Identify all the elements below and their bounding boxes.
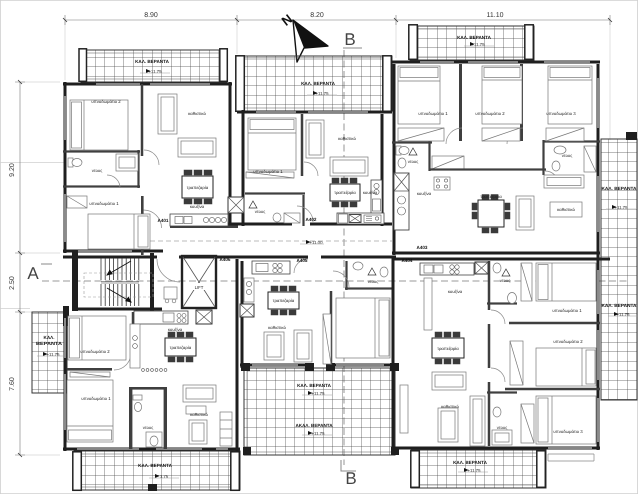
svg-text:υπνοδωμάτιο 2: υπνοδωμάτιο 2 <box>553 339 583 344</box>
svg-text:B: B <box>344 30 355 49</box>
svg-text:καθιστικό: καθιστικό <box>190 412 208 417</box>
svg-text:κουζίνα: κουζίνα <box>448 289 463 294</box>
svg-text:καθιστικό: καθιστικό <box>338 136 356 141</box>
svg-text:ΑΚΑΛ. ΒΕΡΑΝΤΑ: ΑΚΑΛ. ΒΕΡΑΝΤΑ <box>295 423 333 428</box>
svg-text:κουζίνα: κουζίνα <box>417 191 432 196</box>
svg-text:υπνοδωμάτιο 3: υπνοδωμάτιο 3 <box>553 429 583 434</box>
svg-text:ΚΑΛ. ΒΕΡΑΝΤΑ: ΚΑΛ. ΒΕΡΑΝΤΑ <box>135 59 169 64</box>
svg-text:υπνοδωμάτιο 1: υπνοδωμάτιο 1 <box>418 111 448 116</box>
svg-text:τραπεζαρία: τραπεζαρία <box>480 194 502 199</box>
svg-text:ΚΑΛ. ΒΕΡΑΝΤΑ: ΚΑΛ. ΒΕΡΑΝΤΑ <box>138 463 172 468</box>
svg-text:υπνοδωμάτιο 1: υπνοδωμάτιο 1 <box>552 308 582 313</box>
svg-text:ΚΑΛ. ΒΕΡΑΝΤΑ: ΚΑΛ. ΒΕΡΑΝΤΑ <box>453 460 487 465</box>
svg-text:ντους: ντους <box>255 209 266 214</box>
svg-text:9.20: 9.20 <box>9 163 16 177</box>
svg-text:ντους: ντους <box>143 425 154 430</box>
svg-text:καθιστικό: καθιστικό <box>441 404 459 409</box>
svg-text:A404: A404 <box>402 258 413 263</box>
svg-text:τραπεζαρία: τραπεζαρία <box>437 346 459 351</box>
svg-text:υπνοδωμάτιο 3: υπνοδωμάτιο 3 <box>546 111 576 116</box>
svg-text:ΒΕΡΑΝΤΑ: ΒΕΡΑΝΤΑ <box>36 341 63 346</box>
svg-text:τραπεζαρία: τραπεζαρία <box>187 185 209 190</box>
svg-text:LIFT: LIFT <box>195 285 204 290</box>
svg-text:ντους: ντους <box>92 168 103 173</box>
svg-text:B: B <box>345 469 356 488</box>
svg-text:τραπεζαρία: τραπεζαρία <box>170 345 192 350</box>
svg-text:A402: A402 <box>306 217 317 222</box>
svg-text:2.50: 2.50 <box>9 276 16 290</box>
svg-text:υπνοδωμάτιο 1: υπνοδωμάτιο 1 <box>89 201 119 206</box>
svg-text:υπνοδωμάτιο 2: υπνοδωμάτιο 2 <box>91 99 121 104</box>
svg-text:A405: A405 <box>297 258 308 263</box>
svg-text:υπνοδωμάτιο 1: υπνοδωμάτιο 1 <box>253 169 283 174</box>
svg-text:τραπεζαρία: τραπεζαρία <box>273 298 295 303</box>
svg-text:8.20: 8.20 <box>310 12 324 19</box>
svg-text:11.10: 11.10 <box>487 12 504 19</box>
svg-text:A: A <box>27 264 39 283</box>
svg-text:A406: A406 <box>220 257 231 262</box>
svg-text:καθιστικό: καθιστικό <box>268 325 286 330</box>
svg-text:ντους: ντους <box>497 425 508 430</box>
svg-text:κουζίνα: κουζίνα <box>190 204 205 209</box>
svg-text:τραπεζαρία: τραπεζαρία <box>334 190 356 195</box>
svg-text:7.60: 7.60 <box>9 377 16 391</box>
svg-text:ΚΑΛ. ΒΕΡΑΝΤΑ: ΚΑΛ. ΒΕΡΑΝΤΑ <box>301 81 335 86</box>
svg-text:8.90: 8.90 <box>144 12 158 19</box>
svg-text:καθιστικό: καθιστικό <box>188 111 206 116</box>
svg-text:υπνοδωμάτιο 2: υπνοδωμάτιο 2 <box>475 111 505 116</box>
svg-text:ΚΑΛ. ΒΕΡΑΝΤΑ: ΚΑΛ. ΒΕΡΑΝΤΑ <box>602 303 638 308</box>
svg-text:A401: A401 <box>158 218 169 223</box>
svg-text:ΚΑΛ. ΒΕΡΑΝΤΑ: ΚΑΛ. ΒΕΡΑΝΤΑ <box>297 383 331 388</box>
svg-text:ΚΑΛ.: ΚΑΛ. <box>44 335 55 340</box>
svg-text:ντους: ντους <box>368 279 379 284</box>
svg-text:ντους: ντους <box>408 159 419 164</box>
svg-text:ντους: ντους <box>500 278 511 283</box>
svg-text:καθιστικό: καθιστικό <box>557 207 575 212</box>
svg-text:ντους: ντους <box>562 153 573 158</box>
svg-text:κουζίνα: κουζίνα <box>363 190 378 195</box>
svg-text:ΚΑΛ. ΒΕΡΑΝΤΑ: ΚΑΛ. ΒΕΡΑΝΤΑ <box>457 35 491 40</box>
svg-text:υπνοδωμάτιο 1: υπνοδωμάτιο 1 <box>81 396 111 401</box>
svg-text:υπνοδωμάτιο 2: υπνοδωμάτιο 2 <box>80 349 110 354</box>
svg-text:κουζίνα: κουζίνα <box>168 327 183 332</box>
svg-text:ΚΑΛ. ΒΕΡΑΝΤΑ: ΚΑΛ. ΒΕΡΑΝΤΑ <box>602 186 638 191</box>
svg-text:A403: A403 <box>417 245 428 250</box>
